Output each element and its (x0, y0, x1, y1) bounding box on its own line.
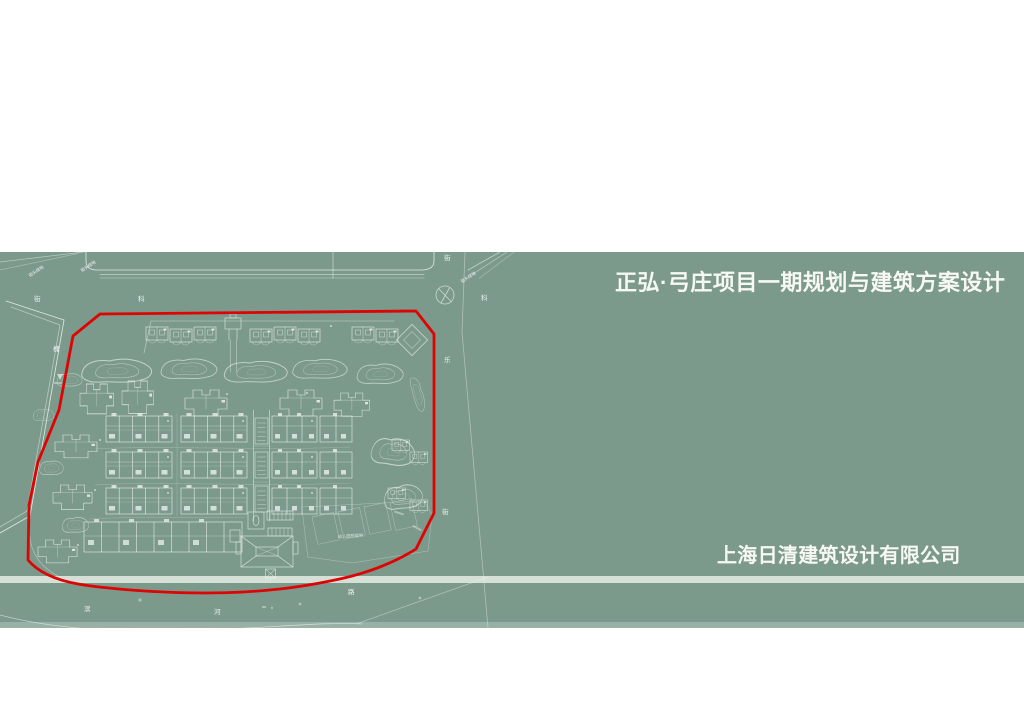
kindergarten-plot (302, 498, 432, 563)
site-buildings (33, 314, 432, 609)
central-axis (254, 410, 270, 521)
map-labels: 街头绿地 街头绿地 街头绿地 街 科 街 科 槐 乐 街 滨 河 路 幼儿园预留… (27, 253, 488, 616)
street-label: 槐 (53, 344, 60, 353)
green-space-label: 街头绿地 (79, 258, 98, 273)
riverside-road-band (0, 576, 1024, 583)
green-space-label: 街头绿地 (27, 263, 46, 278)
green-space-label: 街头绿地 (459, 269, 478, 284)
street-label: 街 (442, 507, 449, 516)
presentation-slide: 街头绿地 街头绿地 街头绿地 街 科 街 科 槐 乐 街 滨 河 路 幼儿园预留… (0, 0, 1024, 724)
north-arrow-icon (436, 286, 454, 304)
rowhouse-band-1 (106, 413, 352, 442)
bottom-house-row (84, 519, 242, 552)
street-label: 科 (481, 293, 488, 302)
street-label: 河 (214, 608, 221, 616)
street-label: 街 (444, 253, 451, 262)
rowhouse-band-2 (106, 449, 352, 478)
shore-strip (0, 622, 1024, 628)
rowhouse-band-3 (106, 485, 352, 514)
street-label: 滨 (84, 604, 91, 613)
kindergarten-label: 幼儿园预留地 (338, 532, 364, 540)
site-plan-drawing: 街头绿地 街头绿地 街头绿地 街 科 街 科 槐 乐 街 滨 河 路 幼儿园预留… (0, 0, 1024, 724)
street-label: 科 (138, 294, 145, 303)
project-title: 正弘·弓庄项目一期规划与建筑方案设计 (615, 265, 1005, 297)
street-label: 路 (348, 587, 355, 596)
company-name: 上海日清建筑设计有限公司 (717, 539, 961, 568)
street-network (0, 252, 514, 631)
street-label: 乐 (444, 355, 451, 364)
street-label: 街 (34, 294, 41, 303)
